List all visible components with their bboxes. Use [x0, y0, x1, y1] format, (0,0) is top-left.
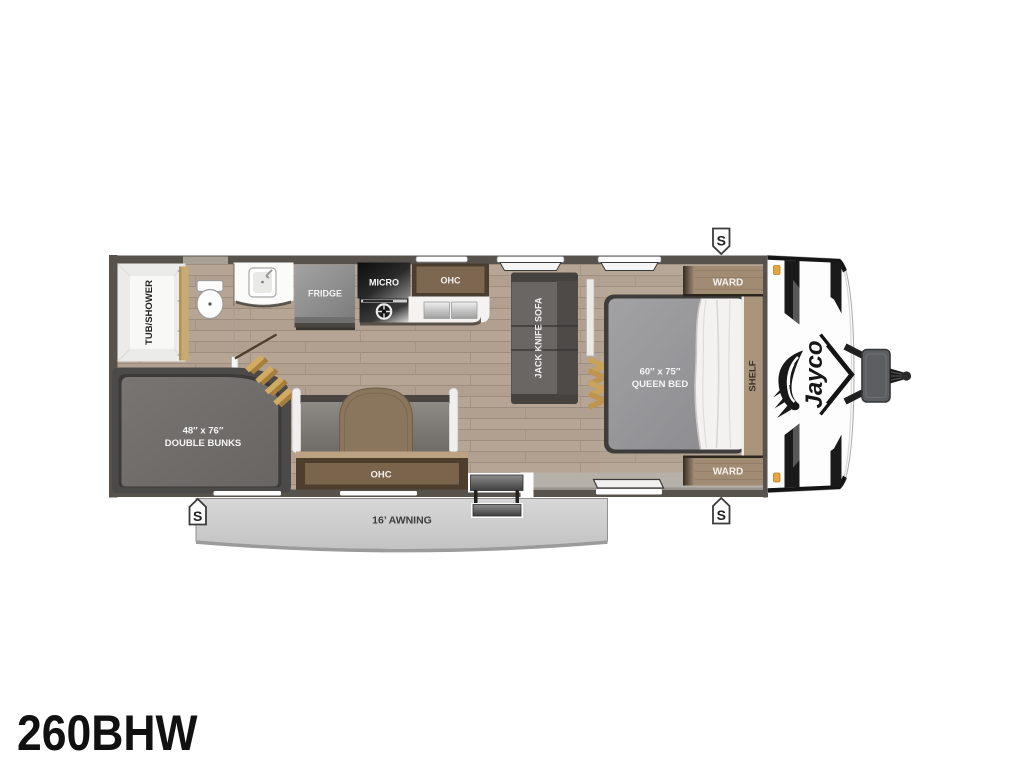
svg-text:QUEEN BED: QUEEN BED	[632, 379, 689, 390]
svg-text:S: S	[717, 507, 726, 523]
svg-text:16’ AWNING: 16’ AWNING	[372, 515, 432, 527]
svg-text:DOUBLE BUNKS: DOUBLE BUNKS	[165, 438, 242, 449]
svg-text:60″ x 75″: 60″ x 75″	[640, 367, 681, 378]
svg-text:S: S	[193, 508, 202, 524]
svg-text:TUB/SHOWER: TUB/SHOWER	[144, 280, 155, 345]
svg-text:WARD: WARD	[713, 467, 744, 478]
svg-text:S: S	[717, 233, 726, 249]
svg-text:OHC: OHC	[441, 276, 462, 286]
svg-text:48″ x 76″: 48″ x 76″	[183, 426, 224, 437]
svg-text:Jayco: Jayco	[801, 340, 828, 408]
svg-text:MICRO: MICRO	[369, 278, 399, 288]
svg-text:SHELF: SHELF	[748, 360, 759, 391]
svg-text:JACK KNIFE SOFA: JACK KNIFE SOFA	[534, 297, 544, 379]
svg-text:WARD: WARD	[713, 278, 744, 289]
svg-text:OHC: OHC	[370, 470, 391, 481]
svg-text:FRIDGE: FRIDGE	[308, 289, 342, 299]
